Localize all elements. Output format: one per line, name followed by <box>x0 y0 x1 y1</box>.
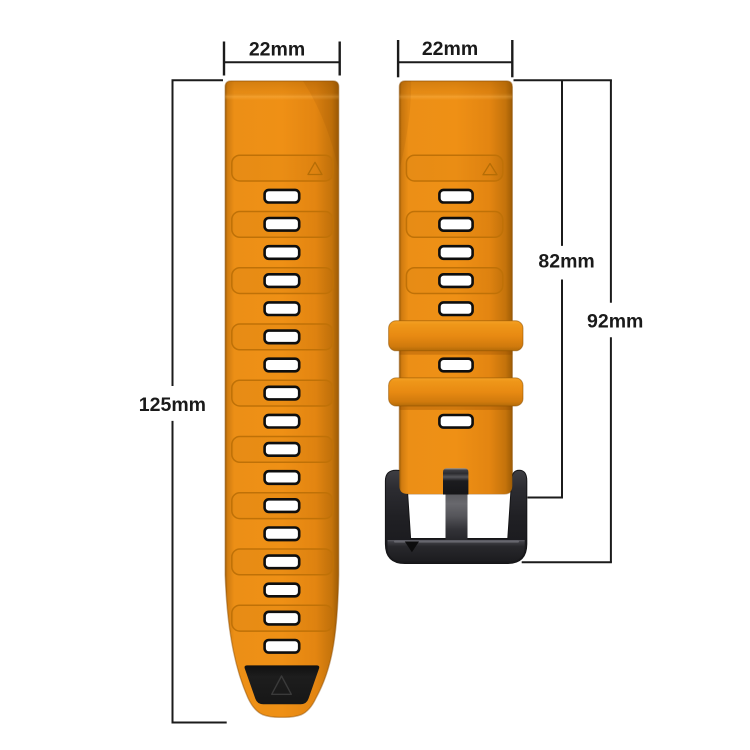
svg-text:125mm: 125mm <box>139 394 206 416</box>
svg-text:22mm: 22mm <box>422 38 478 60</box>
svg-text:22mm: 22mm <box>249 38 305 60</box>
svg-text:92mm: 92mm <box>587 311 643 333</box>
svg-text:82mm: 82mm <box>538 250 594 272</box>
